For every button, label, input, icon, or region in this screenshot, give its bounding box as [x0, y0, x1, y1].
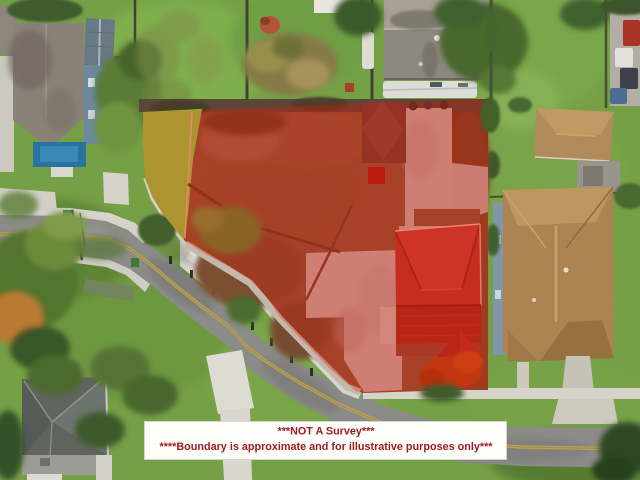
svg-text:****Boundary is approximate an: ****Boundary is approximate and for illu…: [160, 441, 494, 453]
svg-text:***NOT A Survey***: ***NOT A Survey***: [278, 426, 376, 438]
